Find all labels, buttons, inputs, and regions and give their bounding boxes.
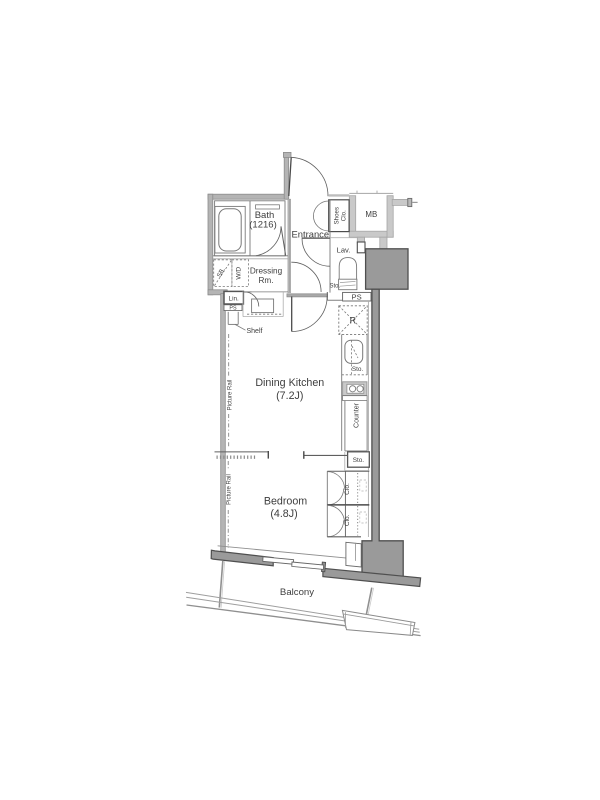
svg-text:Picture Rail: Picture Rail (227, 380, 233, 411)
svg-text:PS: PS (229, 306, 237, 312)
svg-text:Sto.: Sto. (329, 284, 340, 290)
svg-text:Balcony: Balcony (280, 587, 314, 598)
svg-text:(1216): (1216) (249, 220, 276, 231)
svg-text:(7.2J): (7.2J) (276, 390, 303, 402)
svg-text:Picture Rail: Picture Rail (227, 474, 233, 505)
svg-text:R: R (350, 316, 356, 326)
svg-text:MB: MB (365, 210, 377, 219)
svg-text:Sto.: Sto. (352, 366, 364, 373)
svg-text:Clo.: Clo. (340, 210, 347, 221)
svg-text:Rm.: Rm. (258, 276, 273, 285)
svg-text:Counter: Counter (354, 402, 361, 428)
svg-text:(4.8J): (4.8J) (270, 508, 297, 520)
svg-text:Dressing: Dressing (250, 267, 283, 276)
svg-text:Lin.: Lin. (229, 295, 240, 302)
svg-text:Sto.: Sto. (353, 457, 365, 464)
svg-text:Lav.: Lav. (337, 246, 351, 255)
svg-text:W/D: W/D (235, 267, 242, 280)
svg-text:Clo.: Clo. (344, 483, 351, 495)
svg-text:PS: PS (352, 293, 362, 302)
svg-text:Clo.: Clo. (344, 514, 351, 526)
svg-text:Dining Kitchen: Dining Kitchen (255, 377, 324, 389)
svg-text:Bedroom: Bedroom (264, 496, 307, 508)
svg-text:Shelf: Shelf (247, 328, 263, 335)
